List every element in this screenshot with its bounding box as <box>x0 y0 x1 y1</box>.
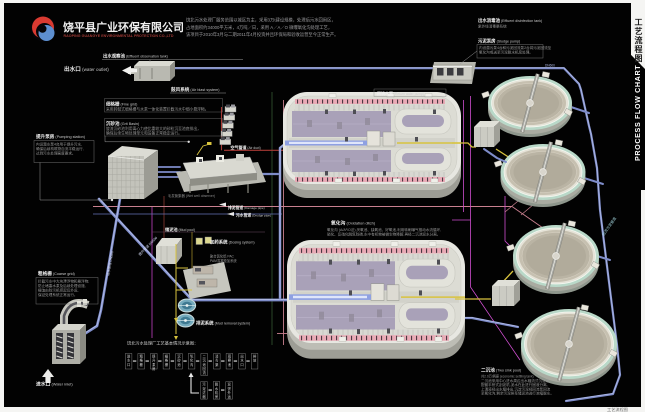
svg-text:饶北污水处理厂服务范围以城区为主，采用3万t建设规模，处理后: 饶北污水处理厂服务范围以城区为主，采用3万t建设规模，处理后污水回用区， <box>186 17 336 24</box>
svg-text:口: 口 <box>127 363 130 367</box>
svg-text:紫外线消毒渠系统: 紫外线消毒渠系统 <box>478 24 507 29</box>
svg-text:栅渣由除污机捞起后外运,: 栅渣由除污机捞起后外运, <box>38 288 79 293</box>
svg-text:防止堵塞水泵及后续处理设施,: 防止堵塞水泵及后续处理设施, <box>38 283 86 288</box>
svg-text:保证处理系统正常运行。: 保证处理系统正常运行。 <box>38 292 78 297</box>
svg-text:聚合氯化铝 PAC: 聚合氯化铝 PAC <box>210 254 235 259</box>
svg-text:流: 流 <box>635 35 643 45</box>
svg-text:配套半桥式刮泥机,泥水在此进行固液分离,: 配套半桥式刮泥机,泥水在此进行固液分离, <box>481 382 548 387</box>
svg-text:加药系统 (Dosing system): 加药系统 (Dosing system) <box>209 239 255 246</box>
svg-text:污泥泵房 (Sludge pump): 污泥泵房 (Sludge pump) <box>478 38 520 45</box>
svg-text:粗格栅 (Coarse grid): 粗格栅 (Coarse grid) <box>38 270 76 277</box>
svg-text:艺: 艺 <box>635 26 643 36</box>
svg-text:进水口 (Water inlet): 进水口 (Water inlet) <box>36 381 73 388</box>
svg-text:内设潜水泵4台用于提升污水,: 内设潜水泵4台用于提升污水, <box>36 142 82 147</box>
svg-text:工: 工 <box>635 18 643 27</box>
svg-text:排泥管道 (Damage pipe): 排泥管道 (Damage pipe) <box>228 205 265 210</box>
svg-text:氧化沟或送至污泥脱水机房处理。: 氧化沟或送至污泥脱水机房处理。 <box>479 50 533 55</box>
svg-text:至氧化沟,剩余污泥排至储泥池进行浓缩脱水。: 至氧化沟,剩余污泥排至储泥池进行浓缩脱水。 <box>481 391 554 396</box>
svg-text:该项目于2010年3月与二期2011年4月投资并且环保局和验: 该项目于2010年3月与二期2011年4月投资并且环保局和验收运营至今正常生产。 <box>186 31 338 38</box>
svg-text:饶北污水处理厂工艺基本情况示意图：: 饶北污水处理厂工艺基本情况示意图： <box>127 340 198 347</box>
svg-text:出水消毒池 (Effluent disinfection t: 出水消毒池 (Effluent disinfection tank) <box>478 17 542 24</box>
svg-text:采用转鼓式细格栅与水泵一体化装置拦截污水中细小悬浮物。: 采用转鼓式细格栅与水泵一体化装置拦截污水中细小悬浮物。 <box>106 106 209 111</box>
svg-text:氧化沟 (Oxidation ditch): 氧化沟 (Oxidation ditch) <box>330 220 376 227</box>
svg-text:提升泵房 (Pumping station): 提升泵房 (Pumping station) <box>36 133 86 140</box>
svg-text:口: 口 <box>240 363 243 367</box>
svg-text:共2.0万t两座 (economic settling ta: 共2.0万t两座 (economic settling tank) <box>481 374 534 379</box>
svg-text:硝化、反硝化脱氮除磷,水中有机物被微生物降解,再经二沉池泥水: 硝化、反硝化脱氮除磷,水中有机物被微生物降解,再经二沉池泥水分离。 <box>327 232 440 237</box>
svg-text:旋流沉砂池利用离心力使比重较大的砂粒沉至池底排出，: 旋流沉砂池利用离心力使比重较大的砂粒沉至池底排出， <box>106 126 201 131</box>
svg-text:DN600: DN600 <box>545 64 555 68</box>
svg-text:图: 图 <box>635 54 643 63</box>
svg-text:饶平县广业环保有限公司: 饶平县广业环保有限公司 <box>63 20 184 34</box>
svg-text:鼓风系统 (Air blast system): 鼓风系统 (Air blast system) <box>171 86 220 93</box>
svg-text:排泥系统 (Mud removal system): 排泥系统 (Mud removal system) <box>196 320 250 327</box>
svg-text:二沉池采用中心进水周边出水辐流式沉淀池,: 二沉池采用中心进水周边出水辐流式沉淀池, <box>481 378 550 383</box>
svg-text:达到污水处理高度要求。: 达到污水处理高度要求。 <box>36 151 76 156</box>
svg-text:拦截污水中大块漂浮物和悬浮物,: 拦截污水中大块漂浮物和悬浮物, <box>38 279 89 284</box>
svg-text:出水口 (water outlet): 出水口 (water outlet) <box>64 65 109 73</box>
svg-text:确保后续生物处理单元和设备正常稳定运行。: 确保后续生物处理单元和设备正常稳定运行。 <box>106 130 182 135</box>
svg-text:RAOPING GUANGYE ENVIRONMENTAL: RAOPING GUANGYE ENVIRONMENTAL PROTECTION… <box>64 34 174 38</box>
svg-text:PROCESS FLOW CHART: PROCESS FLOW CHART <box>633 65 642 161</box>
svg-text:二沉池 (Two sink pool): 二沉池 (Two sink pool) <box>481 367 522 374</box>
svg-text:上清液经出水堰排出,沉淀污泥经回流泵回流: 上清液经出水堰排出,沉淀污泥经回流泵回流 <box>481 386 551 391</box>
svg-text:储泥池 (Mud pool): 储泥池 (Mud pool) <box>164 226 195 233</box>
svg-text:氧化沟 (A/A²/O法) 厌氧池、缺氧池、好氧池,利用转刷: 氧化沟 (A/A²/O法) 厌氧池、缺氧池、好氧池,利用转刷曝气推动水流循环, <box>327 227 441 232</box>
svg-text:内设潜污泵4台和污泥回流泵2台将污泥回流至: 内设潜污泵4台和污泥回流泵2台将污泥回流至 <box>479 45 552 50</box>
svg-text:确保后续构筑物自流平稳运行,: 确保后续构筑物自流平稳运行, <box>36 146 84 151</box>
svg-text:出水观察池 (Effluent observation ta: 出水观察池 (Effluent observation tank) <box>103 53 168 60</box>
svg-text:工艺流程图: 工艺流程图 <box>607 406 628 412</box>
svg-text:毛发聚集器 (Wet well observer): 毛发聚集器 (Wet well observer) <box>168 193 215 198</box>
svg-text:污水管道 (Drudge pipe): 污水管道 (Drudge pipe) <box>236 213 271 218</box>
svg-text:占地面积约34000平方米，4万吨／日，采用 A／A／O 微: 占地面积约34000平方米，4万吨／日，采用 A／A／O 微曝氧化沟处理工艺， <box>186 24 332 31</box>
svg-text:程: 程 <box>635 44 643 54</box>
svg-text:PAM混凝投加系统: PAM混凝投加系统 <box>210 258 237 263</box>
